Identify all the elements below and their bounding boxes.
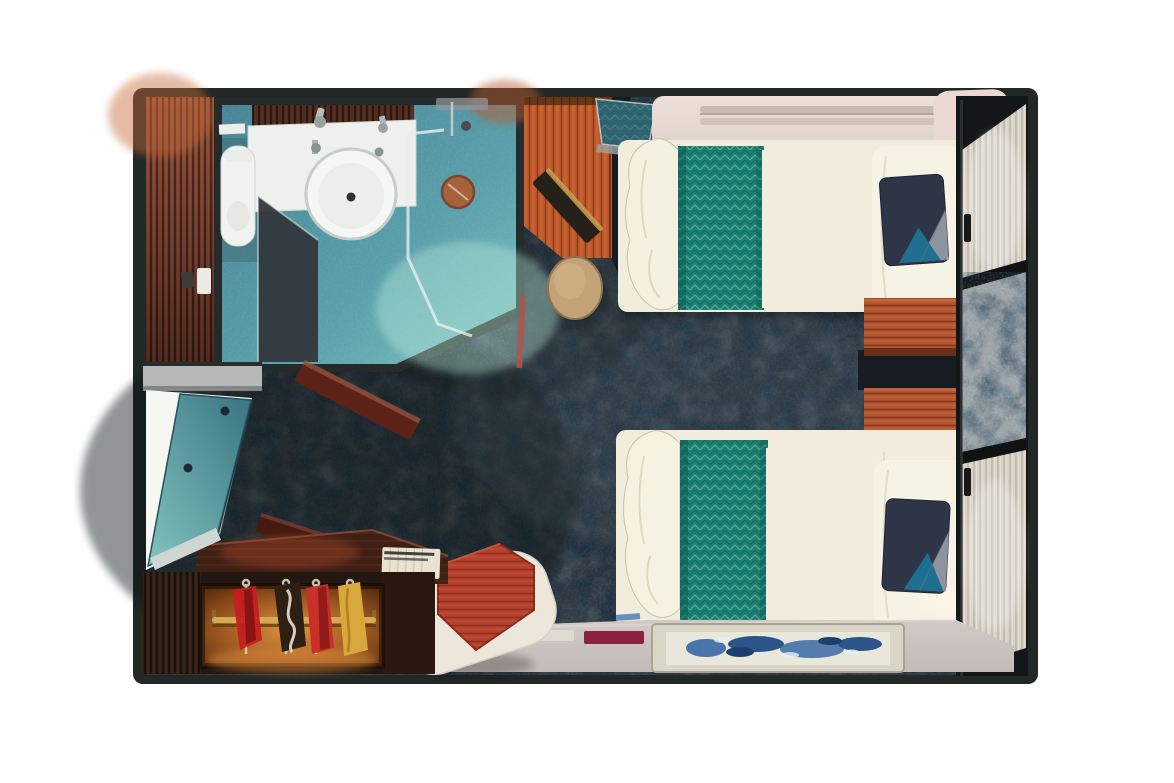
teal-runner: [678, 146, 764, 310]
amenity-tray-maroon: [584, 631, 644, 644]
duvet-folds: [624, 431, 681, 618]
toilet: [221, 146, 255, 246]
wardrobe: [143, 572, 435, 674]
curtain-wall: [956, 96, 1028, 676]
wall-shelf: [219, 123, 245, 134]
shower-bar: [436, 98, 488, 110]
door-handle: [221, 407, 230, 416]
duvet: [766, 448, 886, 626]
twin-bed-upper: [618, 139, 966, 318]
twin-bed-lower: [616, 430, 980, 632]
nightstands: [858, 298, 960, 446]
door-handle: [184, 464, 193, 473]
accent-pillow: [882, 498, 951, 593]
curtain-handle: [964, 214, 971, 242]
screenshot-canvas: [0, 0, 1174, 783]
wall-fitting: [181, 271, 195, 289]
duvet: [762, 150, 882, 308]
stateroom-floorplan: [0, 0, 1174, 783]
curtain-handle: [964, 468, 971, 496]
door-stop: [197, 268, 211, 294]
duvet-folds: [626, 139, 681, 310]
accent-pillow: [879, 174, 949, 266]
stateroom-plan: [80, 73, 1038, 684]
nightstand-1: [864, 298, 956, 356]
shower-head: [461, 121, 471, 131]
basin-drain: [347, 193, 356, 202]
teal-runner: [680, 440, 768, 626]
bathroom: [214, 80, 560, 374]
area-rug: [652, 624, 904, 672]
